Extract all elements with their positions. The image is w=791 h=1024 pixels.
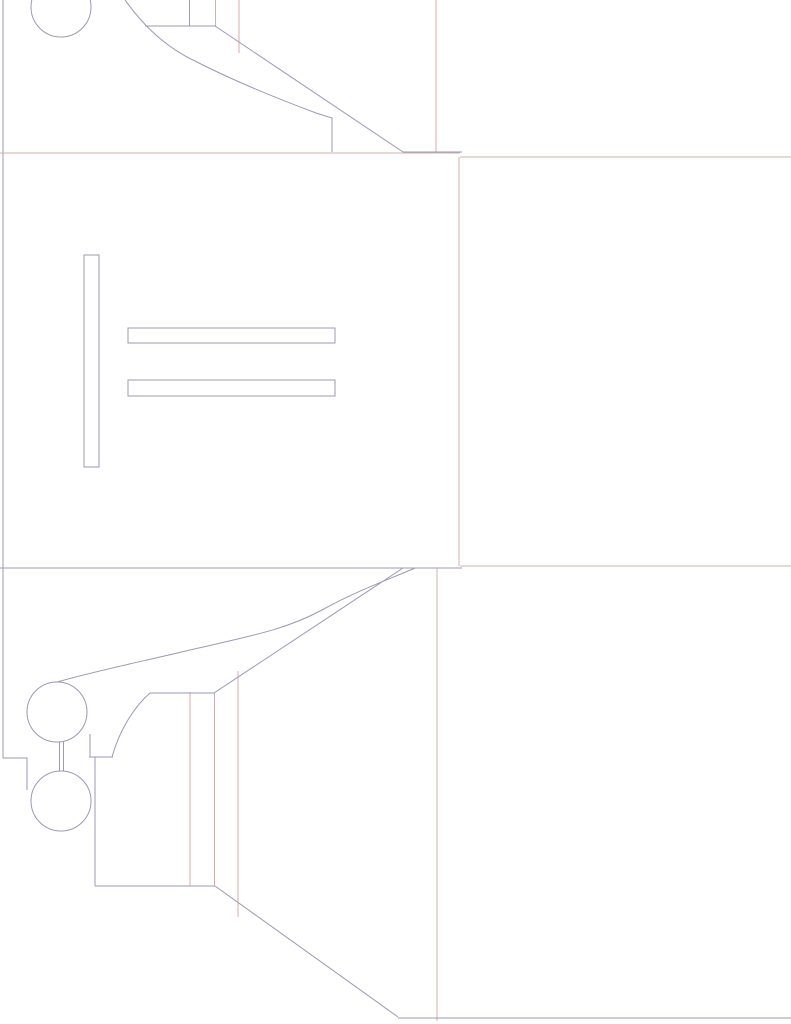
bottom-flap-curve-inner	[112, 693, 150, 757]
bottom-lock-circle-lower	[31, 771, 91, 831]
top-lock-circle	[31, 0, 91, 37]
lock-step	[3, 758, 27, 790]
top-flap-curve	[125, 0, 332, 152]
horizontal-slot-2	[128, 380, 335, 396]
bottom-tab-diagonal	[215, 886, 398, 1017]
dieline-drawing	[0, 0, 791, 1024]
bottom-flap-edge	[150, 568, 403, 693]
bottom-lock-circle-upper	[27, 682, 87, 742]
vertical-slot	[84, 255, 99, 467]
dieline-canvas	[0, 0, 791, 1024]
horizontal-slot-1	[128, 328, 335, 343]
top-flap-edge	[145, 26, 403, 152]
bottom-flap-curve-outer	[57, 568, 415, 682]
